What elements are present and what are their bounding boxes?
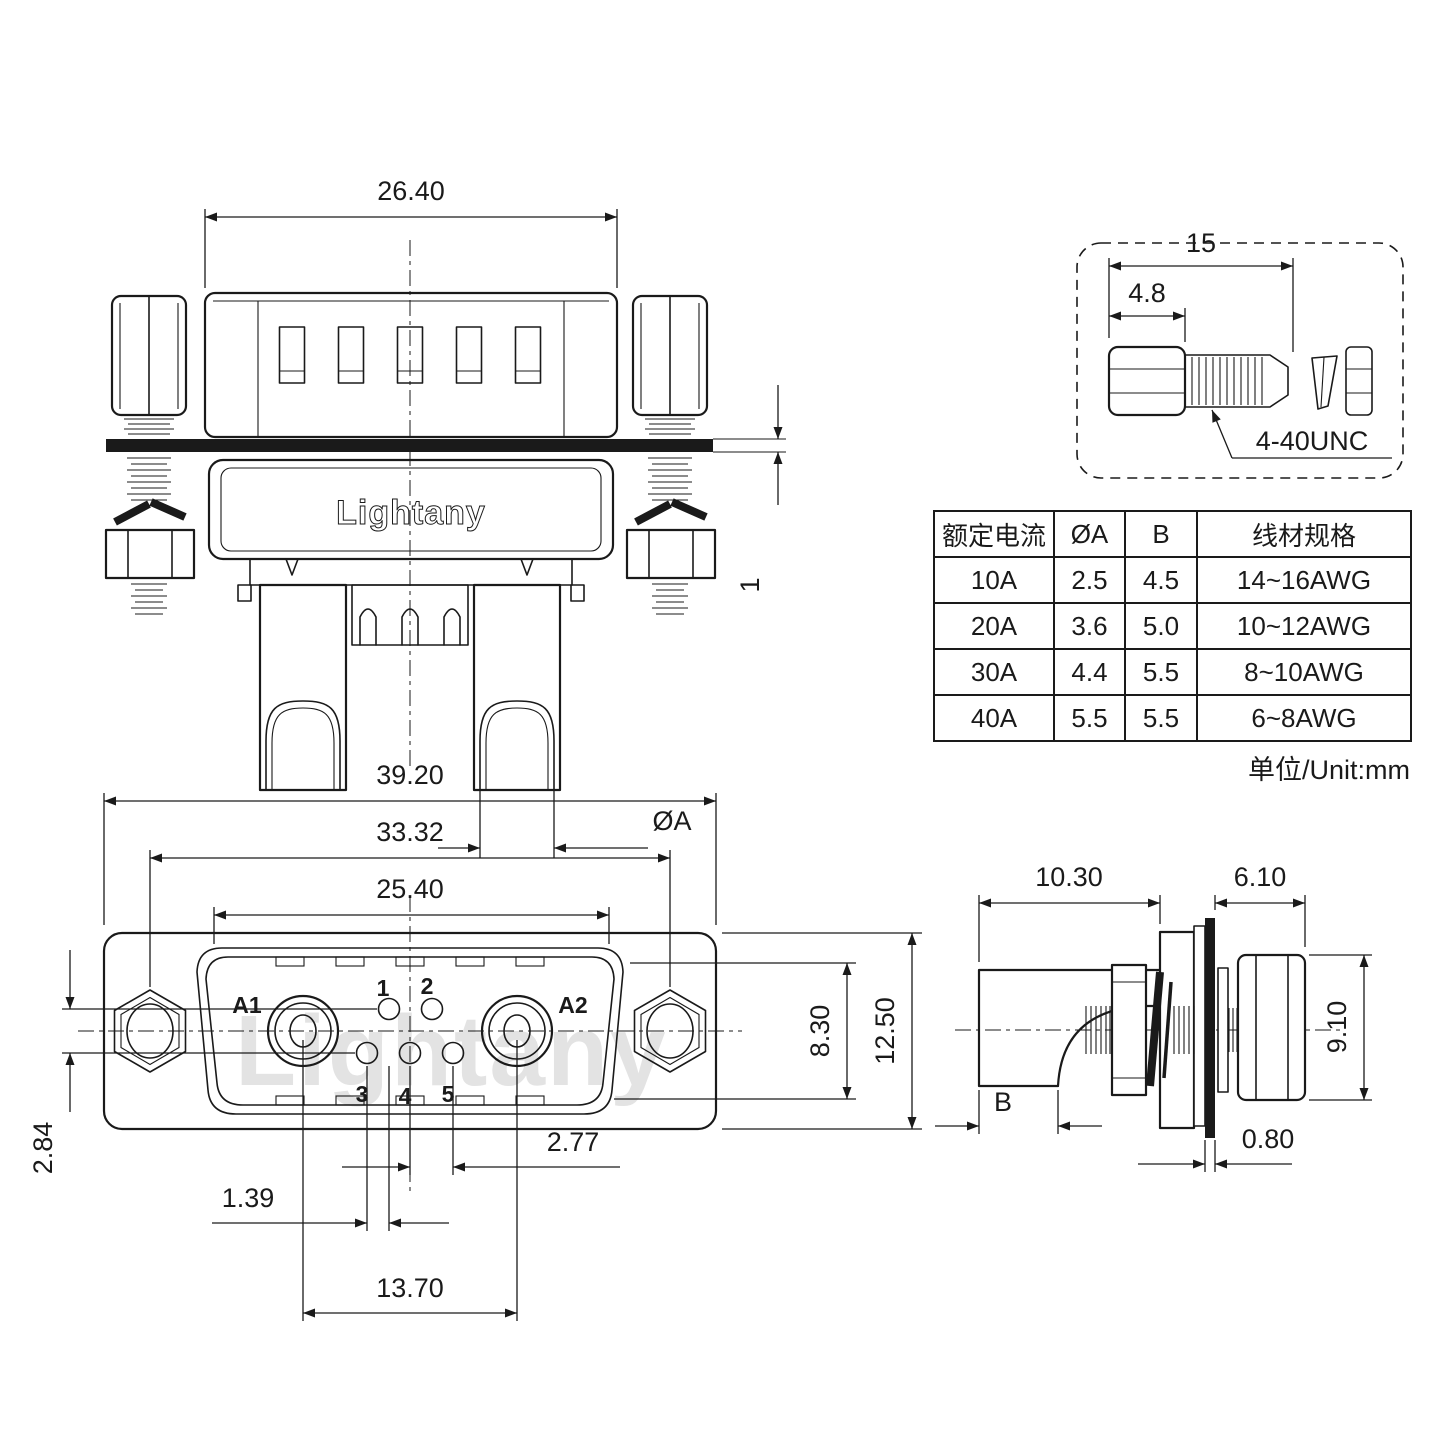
side-dim-rear-depth: 6.10	[1234, 862, 1287, 892]
front-dim-overall: 39.20	[376, 760, 444, 790]
spec-cell-r2-c1: 4.4	[1054, 649, 1125, 695]
detail-thread-spec: 4-40UNC	[1256, 426, 1369, 456]
spec-cell-r0-c3: 14~16AWG	[1197, 557, 1411, 603]
detail-dim-total: 15	[1186, 228, 1216, 258]
jackscrew-knob-left	[112, 296, 186, 434]
side-view: 10.30 6.10 9.10 B 0.80	[935, 862, 1372, 1172]
spec-row-0: 10A2.54.514~16AWG	[934, 557, 1411, 603]
screwlock-detail: 15 4.8 4-40UNC	[1077, 228, 1403, 478]
panel-sheet	[106, 439, 713, 452]
spec-row-1: 20A3.65.010~12AWG	[934, 603, 1411, 649]
side-standoff-nut	[1238, 955, 1305, 1100]
pin-label-a2: A2	[558, 992, 587, 1018]
front-dim-insert-h: 8.30	[805, 1005, 835, 1058]
top-dim-panel-thickness: 1	[735, 577, 765, 592]
front-view: Lightany	[28, 760, 922, 1321]
spec-header-0: 额定电流	[934, 511, 1054, 557]
front-dim-insert-w: 25.40	[376, 874, 444, 904]
spec-table-container: 额定电流ØAB线材规格 10A2.54.514~16AWG20A3.65.010…	[933, 510, 1410, 742]
spec-cell-r3-c0: 40A	[934, 695, 1054, 741]
top-dim-width: 26.40	[377, 176, 445, 206]
front-dim-pitch: 2.77	[547, 1127, 600, 1157]
side-dim-cup-id: B	[994, 1087, 1012, 1117]
spec-cell-r0-c0: 10A	[934, 557, 1054, 603]
side-rear-washer	[1218, 968, 1228, 1092]
spec-cell-r1-c1: 3.6	[1054, 603, 1125, 649]
jackscrew-knob-right	[633, 296, 707, 434]
brand-logo: Lightany	[336, 494, 486, 532]
spec-cell-r1-c2: 5.0	[1125, 603, 1197, 649]
spec-table-body: 10A2.54.514~16AWG20A3.65.010~12AWG30A4.4…	[934, 557, 1411, 741]
detail-dim-head: 4.8	[1128, 278, 1166, 308]
top-view: 26.40 1	[106, 176, 786, 858]
pin-label-1: 1	[377, 975, 390, 1001]
spec-header-1: ØA	[1054, 511, 1125, 557]
side-dim-nut-height: 9.10	[1322, 1001, 1352, 1054]
spec-cell-r3-c1: 5.5	[1054, 695, 1125, 741]
side-lock-washer	[1150, 972, 1160, 1086]
screwlock-body	[1109, 347, 1288, 415]
spec-cell-r1-c3: 10~12AWG	[1197, 603, 1411, 649]
side-jam-nut	[1112, 965, 1146, 1095]
side-panel	[1205, 918, 1215, 1138]
spec-table-head: 额定电流ØAB线材规格	[934, 511, 1411, 557]
detail-nut	[1346, 347, 1372, 415]
side-dim-front-depth: 10.30	[1035, 862, 1103, 892]
spec-cell-r2-c0: 30A	[934, 649, 1054, 695]
spec-cell-r0-c2: 4.5	[1125, 557, 1197, 603]
front-dim-stagger: 1.39	[222, 1183, 275, 1213]
spec-cell-r3-c3: 6~8AWG	[1197, 695, 1411, 741]
hardware-stack-left	[106, 458, 194, 614]
spec-cell-r1-c0: 20A	[934, 603, 1054, 649]
spec-cell-r2-c3: 8~10AWG	[1197, 649, 1411, 695]
side-face-plate	[1194, 926, 1205, 1126]
front-dim-row-offset: 2.84	[28, 1122, 58, 1175]
pin-label-2: 2	[421, 973, 434, 999]
pin-label-a1: A1	[232, 992, 262, 1018]
spec-cell-r2-c2: 5.5	[1125, 649, 1197, 695]
top-dim-hole-dia: ØA	[652, 806, 691, 836]
spec-header-3: 线材规格	[1197, 511, 1411, 557]
spec-row-2: 30A4.45.58~10AWG	[934, 649, 1411, 695]
front-dim-mount: 33.32	[376, 817, 444, 847]
shell-outline	[205, 293, 617, 437]
spec-header-2: B	[1125, 511, 1197, 557]
spec-row-3: 40A5.55.56~8AWG	[934, 695, 1411, 741]
front-dim-power-pitch: 13.70	[376, 1273, 444, 1303]
detail-wedge	[1312, 356, 1337, 409]
spec-table: 额定电流ØAB线材规格 10A2.54.514~16AWG20A3.65.010…	[933, 510, 1412, 742]
hardware-stack-right	[627, 458, 715, 614]
side-dim-panel-thickness: 0.80	[1242, 1124, 1295, 1154]
wire-cup-left	[260, 585, 346, 790]
spec-cell-r3-c2: 5.5	[1125, 695, 1197, 741]
spec-cell-r0-c1: 2.5	[1054, 557, 1125, 603]
front-dim-flange-h: 12.50	[870, 997, 900, 1065]
wire-cup-right	[474, 585, 560, 790]
unit-note: 单位/Unit:mm	[933, 748, 1410, 787]
drawing-page: { "brand": { "logo": "Lightany", "waterm…	[0, 0, 1440, 1440]
